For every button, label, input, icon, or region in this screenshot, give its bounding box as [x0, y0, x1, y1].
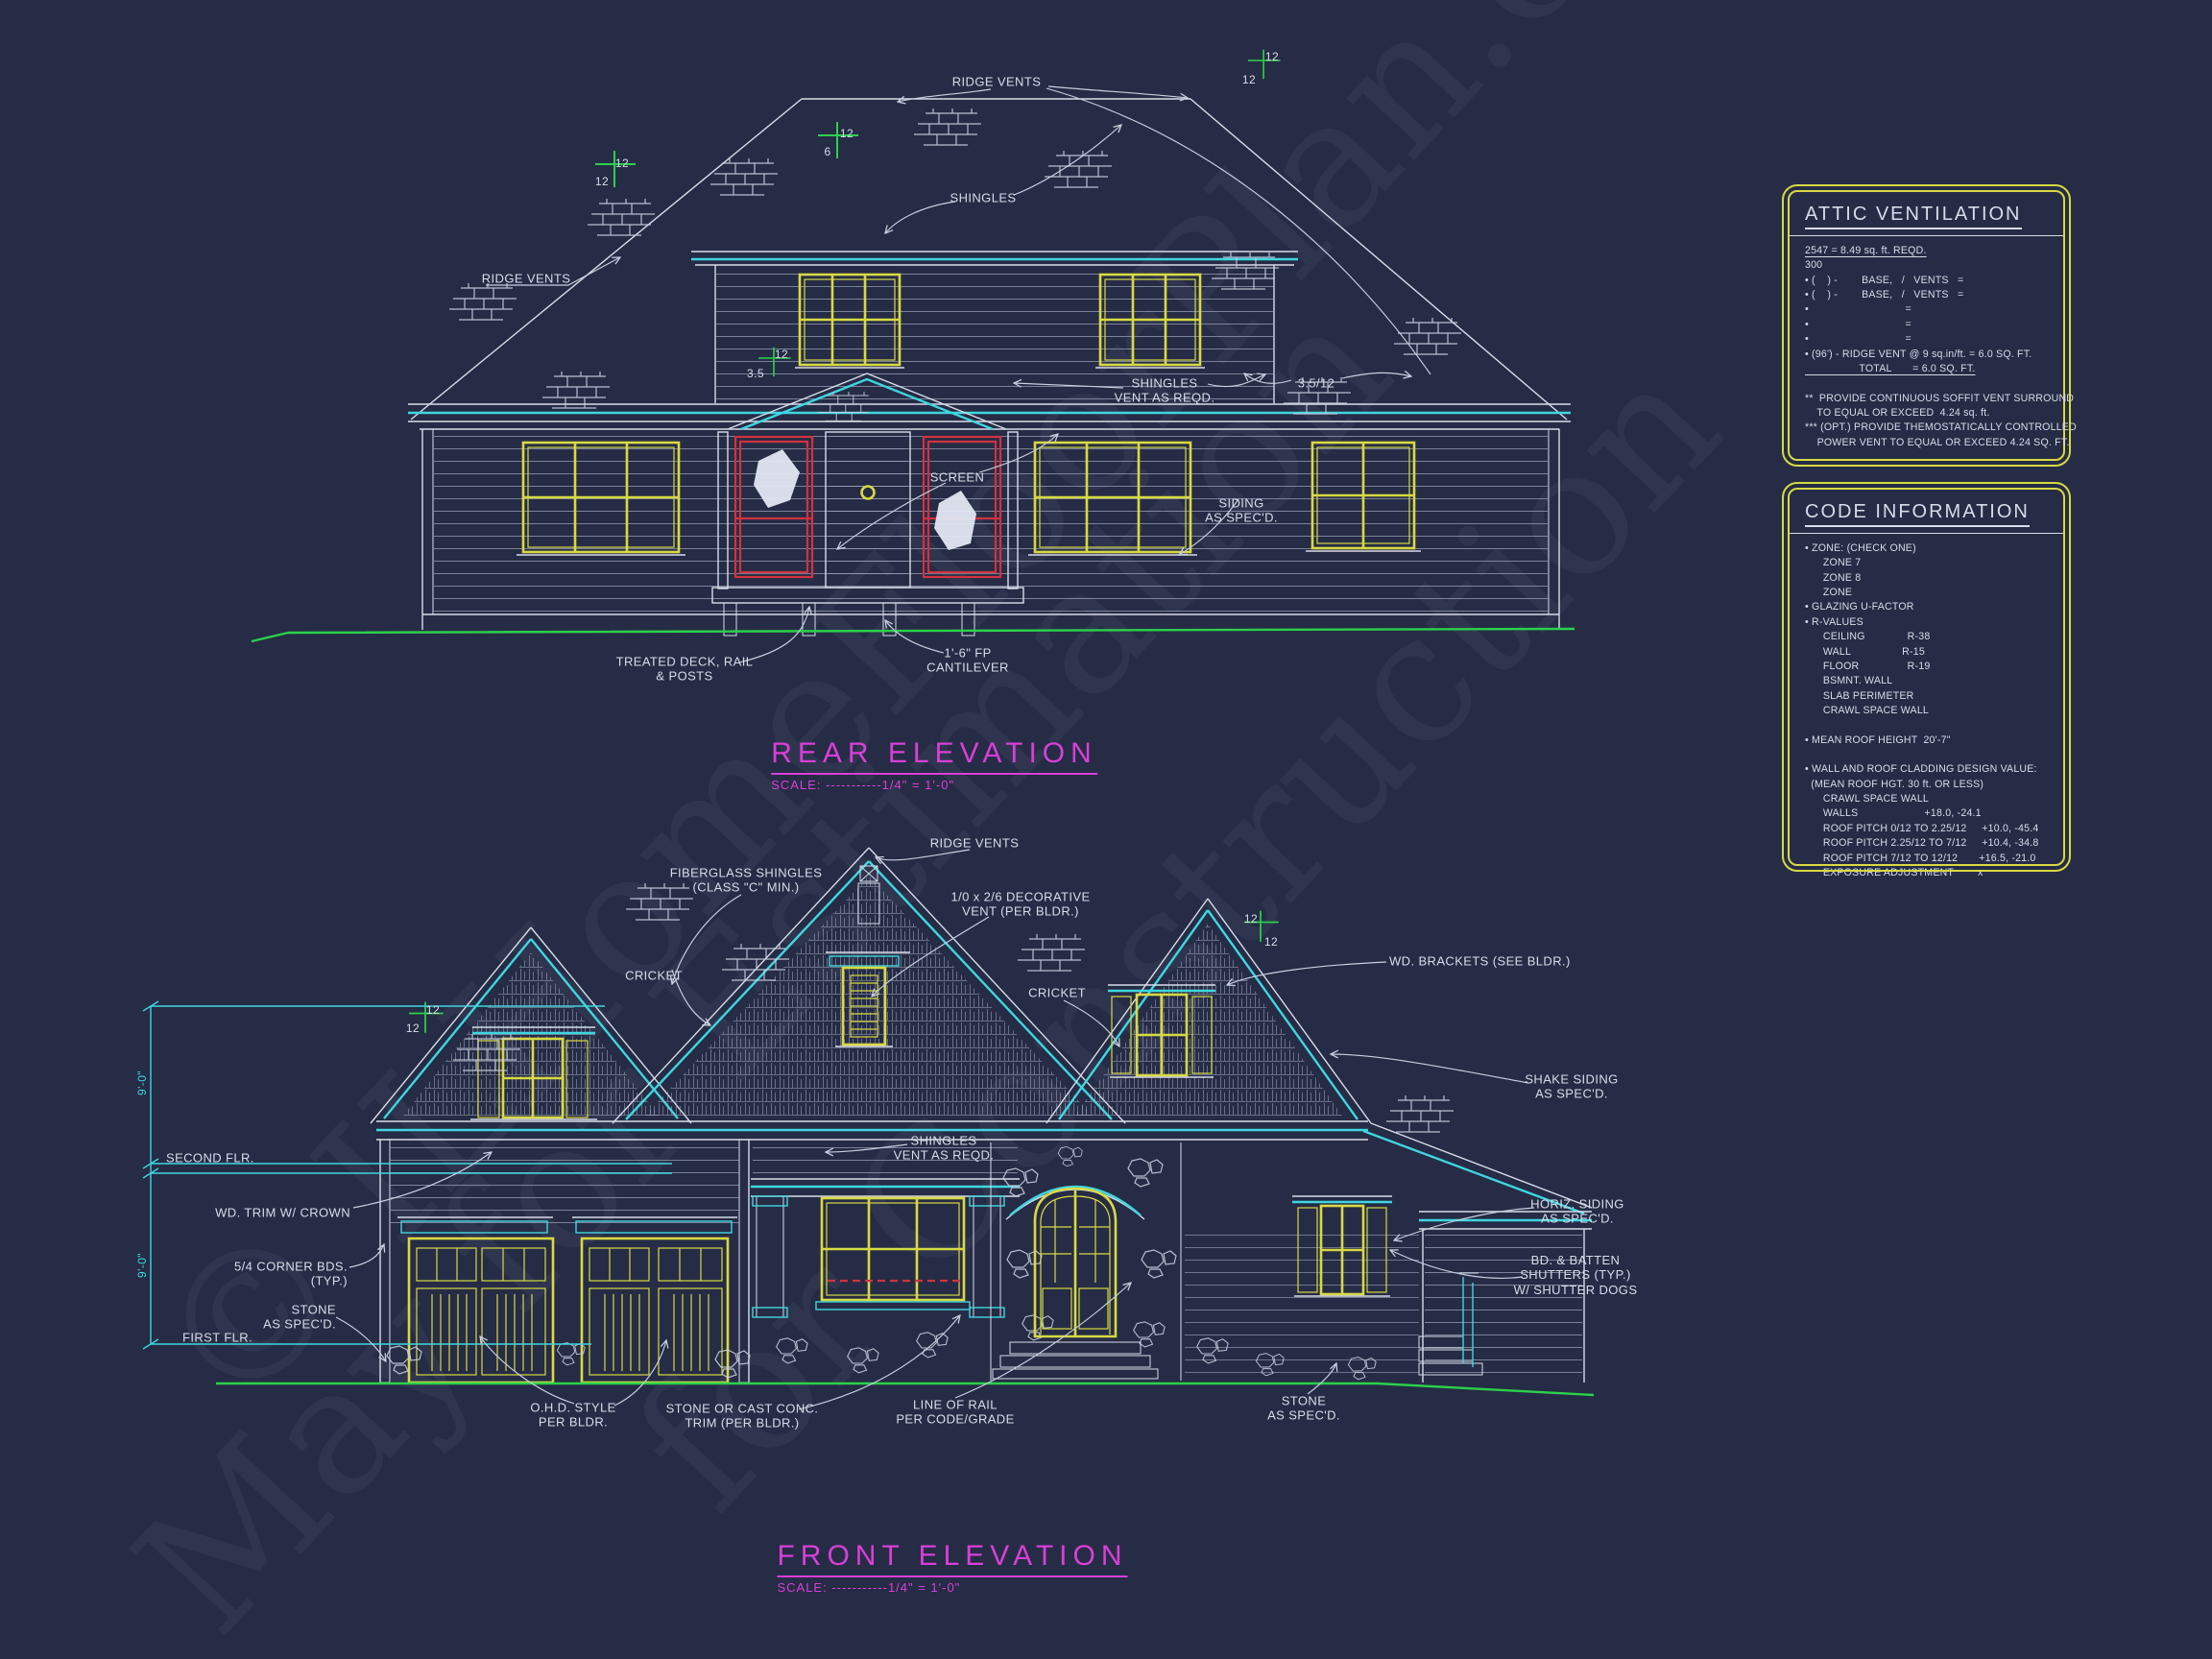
- annotation-label: 1/0 x 2/6 DECORATIVE VENT (PER BLDR.): [950, 890, 1090, 920]
- annotation-label: STONE AS SPEC'D.: [1267, 1394, 1340, 1424]
- box-divider: [1790, 235, 2063, 236]
- spec-line: • (96') - RIDGE VENT @ 9 sq.in/ft. = 6.0…: [1805, 348, 2050, 362]
- annotation-label: SHINGLES VENT AS REQD.: [894, 1134, 995, 1164]
- annotation-label: 5/4 CORNER BDS. (TYP.): [234, 1260, 348, 1289]
- annotation-label: HORIZ. SIDING AS SPEC'D.: [1530, 1197, 1624, 1227]
- code-information-lines: • ZONE: (CHECK ONE) ZONE 7 ZONE 8 ZONE• …: [1805, 541, 2050, 880]
- annotation-label: STONE AS SPEC'D.: [263, 1303, 336, 1333]
- spec-line: CRAWL SPACE WALL: [1805, 704, 2050, 718]
- rear-title-text: REAR ELEVATION: [771, 737, 1097, 775]
- spec-line: • ( ) - BASE, / VENTS =: [1805, 288, 2050, 302]
- front-elevation-title: FRONT ELEVATION SCALE: -----------1/4" =…: [777, 1540, 1127, 1595]
- annotation-label: 12: [1244, 912, 1258, 926]
- spec-line: • WALL AND ROOF CLADDING DESIGN VALUE:: [1805, 762, 2050, 777]
- annotation-label: 9'-0": [135, 1070, 149, 1095]
- spec-line: (MEAN ROOF HGT. 30 ft. OR LESS): [1805, 778, 2050, 792]
- spec-line: ZONE 7: [1805, 556, 2050, 570]
- spec-line: • MEAN ROOF HEIGHT 20'-7": [1805, 733, 2050, 748]
- attic-ventilation-lines: 2547 = 8.49 sq. ft. REQD.300• ( ) - BASE…: [1805, 244, 2050, 450]
- spec-line: WALL R-15: [1805, 645, 2050, 660]
- annotation-label: RIDGE VENTS: [930, 835, 1020, 850]
- spec-line: • ( ) - BASE, / VENTS =: [1805, 274, 2050, 288]
- spec-line: ROOF PITCH 0/12 TO 2.25/12 +10.0, -45.4: [1805, 822, 2050, 836]
- annotation-label: FIBERGLASS SHINGLES (CLASS "C" MIN.): [670, 866, 823, 896]
- annotation-label: SECOND FLR.: [166, 1150, 254, 1165]
- blueprint-sheet: © ILHomeFloorPlan.comfor ConstructionMay…: [0, 0, 2212, 1659]
- annotation-label: LINE OF RAIL PER CODE/GRADE: [896, 1398, 1014, 1428]
- spec-line: • R-VALUES: [1805, 615, 2050, 630]
- front-scale-label: SCALE: -----------1/4" = 1'-0": [777, 1580, 1127, 1595]
- annotation-label: WD. TRIM W/ CROWN: [215, 1205, 350, 1219]
- annotation-label: 12: [406, 1022, 420, 1035]
- attic-ventilation-title: ATTIC VENTILATION: [1805, 204, 2022, 229]
- spec-line: ** PROVIDE CONTINUOUS SOFFIT VENT SURROU…: [1805, 392, 2050, 406]
- spec-line: *** (OPT.) PROVIDE THEMOSTATICALLY CONTR…: [1805, 421, 2050, 435]
- spec-line: • =: [1805, 318, 2050, 332]
- spec-line: FLOOR R-19: [1805, 660, 2050, 674]
- spec-line: WALLS +18.0, -24.1: [1805, 806, 2050, 821]
- rear-scale-label: SCALE: -----------1/4" = 1'-0": [771, 778, 1097, 792]
- code-information-title: CODE INFORMATION: [1805, 501, 2030, 527]
- spec-line: TO EQUAL OR EXCEED 4.24 sq. ft.: [1805, 406, 2050, 421]
- annotation-label: 12: [1264, 935, 1278, 949]
- spec-line: 2547 = 8.49 sq. ft. REQD.: [1805, 244, 2050, 258]
- spec-line: ZONE 8: [1805, 571, 2050, 586]
- rear-elevation-title: REAR ELEVATION SCALE: -----------1/4" = …: [771, 737, 1097, 792]
- code-information-box: CODE INFORMATION • ZONE: (CHECK ONE) ZON…: [1788, 488, 2065, 866]
- annotation-label: SHAKE SIDING AS SPEC'D.: [1525, 1072, 1618, 1102]
- spec-line: • GLAZING U-FACTOR: [1805, 600, 2050, 614]
- annotation-label: CRICKET: [1028, 985, 1086, 999]
- front-title-text: FRONT ELEVATION: [777, 1540, 1127, 1577]
- spec-line: • ZONE: (CHECK ONE): [1805, 541, 2050, 556]
- spec-line: 300: [1805, 258, 2050, 273]
- spec-line: TOTAL = 6.0 SQ. FT.: [1805, 362, 2050, 376]
- spec-line: [1805, 376, 2050, 391]
- annotation-label: CRICKET: [625, 968, 683, 982]
- annotation-label: BD. & BATTEN SHUTTERS (TYP.) W/ SHUTTER …: [1514, 1253, 1638, 1297]
- spec-line: [1805, 718, 2050, 733]
- spec-line: ZONE: [1805, 586, 2050, 600]
- spec-line: EXPOSURE ADJUSTMENT x: [1805, 866, 2050, 880]
- annotation-label: WD. BRACKETS (SEE BLDR.): [1389, 953, 1571, 968]
- spec-line: SLAB PERIMETER: [1805, 689, 2050, 704]
- spec-line: BSMNT. WALL: [1805, 674, 2050, 688]
- spec-line: CEILING R-38: [1805, 630, 2050, 644]
- spec-line: • =: [1805, 332, 2050, 347]
- spec-line: [1805, 748, 2050, 762]
- box-divider: [1790, 533, 2063, 534]
- annotation-label: STONE OR CAST CONC. TRIM (PER BLDR.): [666, 1402, 819, 1431]
- annotation-label: 12: [426, 1003, 440, 1017]
- annotation-label: FIRST FLR.: [182, 1330, 252, 1344]
- spec-line: POWER VENT TO EQUAL OR EXCEED 4.24 SQ. F…: [1805, 436, 2050, 450]
- spec-line: CRAWL SPACE WALL: [1805, 792, 2050, 806]
- annotation-label: 9'-0": [135, 1253, 149, 1278]
- annotation-label: O.H.D. STYLE PER BLDR.: [530, 1401, 615, 1431]
- spec-line: • =: [1805, 302, 2050, 317]
- spec-line: ROOF PITCH 7/12 TO 12/12 +16.5, -21.0: [1805, 852, 2050, 866]
- spec-line: ROOF PITCH 2.25/12 TO 7/12 +10.4, -34.8: [1805, 836, 2050, 851]
- attic-ventilation-box: ATTIC VENTILATION 2547 = 8.49 sq. ft. RE…: [1788, 190, 2065, 461]
